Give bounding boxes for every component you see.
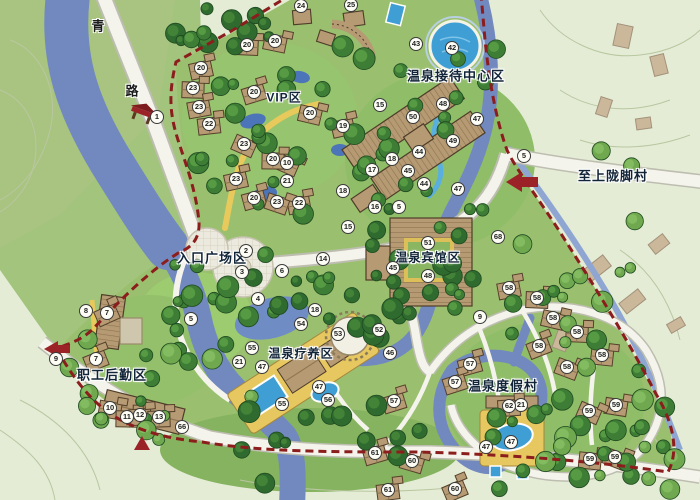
tree-highlight (202, 4, 209, 11)
tree-highlight (174, 298, 180, 304)
tree-highlight (455, 290, 461, 296)
tree-highlight (643, 473, 651, 481)
tree-highlight (325, 314, 331, 320)
tree-highlight (445, 256, 455, 266)
tree-highlight (228, 156, 235, 163)
tree-highlight (517, 465, 525, 473)
tree-highlight (607, 422, 619, 434)
tree-highlight (270, 434, 279, 443)
tree-highlight (466, 205, 472, 211)
tree-highlight (554, 391, 566, 403)
tree-highlight (549, 287, 556, 294)
tree-highlight (542, 405, 548, 411)
tree-highlight (616, 268, 622, 274)
tree-highlight (300, 411, 309, 420)
tree-highlight (219, 278, 231, 290)
tree-highlight (559, 293, 565, 299)
tree-highlight (384, 300, 396, 312)
tree-highlight (561, 317, 570, 326)
tree-highlight (197, 153, 205, 161)
tree-highlight (658, 441, 666, 449)
tree-highlight (269, 178, 275, 184)
tree-highlight (572, 418, 583, 429)
tree-highlight (308, 272, 315, 279)
tree-highlight (293, 294, 302, 303)
tree-highlight (536, 291, 545, 300)
tree-highlight (561, 274, 570, 283)
tree-highlight (372, 271, 378, 277)
tree-highlight (404, 308, 412, 316)
tree-highlight (359, 434, 369, 444)
tree-highlight (373, 194, 381, 202)
tree-highlight (324, 273, 330, 279)
tree-highlight (228, 39, 238, 49)
tree-highlight (452, 53, 460, 61)
tree-highlight (489, 410, 500, 421)
tree-highlight (367, 240, 375, 248)
tree-highlight (619, 455, 629, 465)
tree-highlight (316, 83, 324, 91)
tree-highlight (181, 354, 191, 364)
tree-highlight (508, 417, 514, 423)
tree-highlight (450, 92, 458, 100)
tree-highlight (483, 380, 490, 387)
tree-highlight (561, 338, 567, 344)
tree-highlight (588, 332, 599, 343)
tree-highlight (634, 391, 646, 403)
tree-highlight (137, 397, 143, 403)
tree-highlight (579, 360, 589, 370)
tree-highlight (529, 407, 539, 417)
tree-highlight (171, 261, 177, 267)
tree-highlight (439, 123, 448, 132)
tree-highlight (292, 277, 298, 283)
tree-highlight (160, 412, 166, 418)
tree-highlight (208, 180, 217, 189)
tree-highlight (168, 25, 179, 36)
tree-highlight (555, 439, 565, 449)
map-canvas (0, 0, 700, 500)
tree-highlight (633, 365, 641, 373)
tree-highlight (260, 19, 267, 26)
tree-highlight (219, 338, 228, 347)
tree-highlight (259, 249, 268, 258)
tree-highlight (391, 252, 402, 263)
tree-highlight (493, 482, 502, 491)
tree-highlight (192, 261, 199, 268)
tree-highlight (265, 33, 271, 39)
tree-highlight (489, 42, 499, 52)
tree-highlight (279, 68, 289, 78)
tree-highlight (594, 144, 604, 154)
tree-highlight (506, 297, 516, 307)
tree-highlight (177, 36, 183, 42)
tree-highlight (385, 205, 391, 211)
tree-highlight (662, 482, 673, 493)
tree-highlight (574, 270, 582, 278)
tree-highlight (466, 272, 475, 281)
tree-highlight (142, 414, 148, 420)
tree-highlight (171, 325, 179, 333)
tree-highlight (223, 12, 234, 23)
tree-highlight (478, 205, 485, 212)
tree-highlight (281, 439, 287, 445)
tree-highlight (636, 421, 644, 429)
tree-highlight (599, 448, 607, 456)
tree-highlight (240, 309, 251, 320)
tree-highlight (326, 119, 333, 126)
tree-highlight (254, 200, 260, 206)
tree-highlight (507, 329, 514, 336)
tree-highlight (334, 408, 345, 419)
tree-highlight (246, 271, 256, 281)
tree-highlight (209, 294, 216, 301)
tree-highlight (334, 38, 346, 50)
tree-highlight (424, 286, 433, 295)
tree-highlight (96, 414, 103, 421)
tree-highlight (349, 319, 360, 330)
tree-highlight (227, 105, 238, 116)
tree-highlight (183, 287, 195, 299)
tree-highlight (422, 186, 428, 192)
master-plan-map: 温泉接待中心区VIP区入口广场区温泉宾馆区温泉疗养区温泉度假村职工后勤区至上陇脚… (0, 0, 700, 500)
tree-highlight (257, 475, 268, 486)
tree-highlight (369, 223, 379, 233)
tree-highlight (625, 159, 634, 168)
tree-highlight (185, 33, 194, 42)
tree-highlight (391, 432, 400, 441)
tree-highlight (204, 351, 215, 362)
tree-highlight (229, 80, 235, 86)
tree-highlight (279, 82, 289, 92)
tree-highlight (163, 308, 173, 318)
tree-highlight (395, 289, 404, 298)
tree-highlight (447, 284, 454, 291)
tree-highlight (435, 223, 442, 230)
tree-highlight (400, 179, 408, 187)
tree-highlight (141, 350, 148, 357)
tree-highlight (596, 471, 602, 477)
tree-highlight (440, 113, 447, 120)
tree-highlight (453, 230, 462, 239)
tree-highlight (364, 317, 375, 328)
tree-highlight (626, 264, 632, 270)
tree-highlight (346, 289, 354, 297)
tree-highlight (414, 425, 422, 433)
tree-highlight (449, 302, 457, 310)
tree-highlight (409, 100, 417, 108)
tree-highlight (246, 391, 253, 398)
tree-highlight (359, 158, 369, 168)
tree-highlight (145, 372, 154, 381)
tree-highlight (295, 206, 306, 217)
tree-highlight (253, 126, 260, 133)
tree-highlight (395, 65, 403, 73)
tree-highlight (381, 140, 392, 151)
tree-highlight (80, 399, 89, 408)
tree-highlight (241, 403, 253, 415)
tree-highlight (379, 128, 386, 135)
tree-highlight (390, 448, 401, 459)
tree-highlight (571, 469, 582, 480)
tree-highlight (479, 76, 488, 85)
tree-highlight (213, 79, 223, 89)
tree-highlight (628, 214, 638, 224)
tree-highlight (388, 276, 396, 284)
tree-highlight (272, 298, 282, 308)
tree-highlight (346, 126, 358, 138)
tree-highlight (163, 345, 175, 357)
tree-highlight (368, 397, 379, 408)
tree-highlight (487, 430, 496, 439)
tree-highlight (355, 50, 367, 62)
tree-highlight (640, 442, 647, 449)
tree-highlight (515, 237, 525, 247)
tree-highlight (198, 27, 206, 35)
tree-highlight (290, 149, 300, 159)
